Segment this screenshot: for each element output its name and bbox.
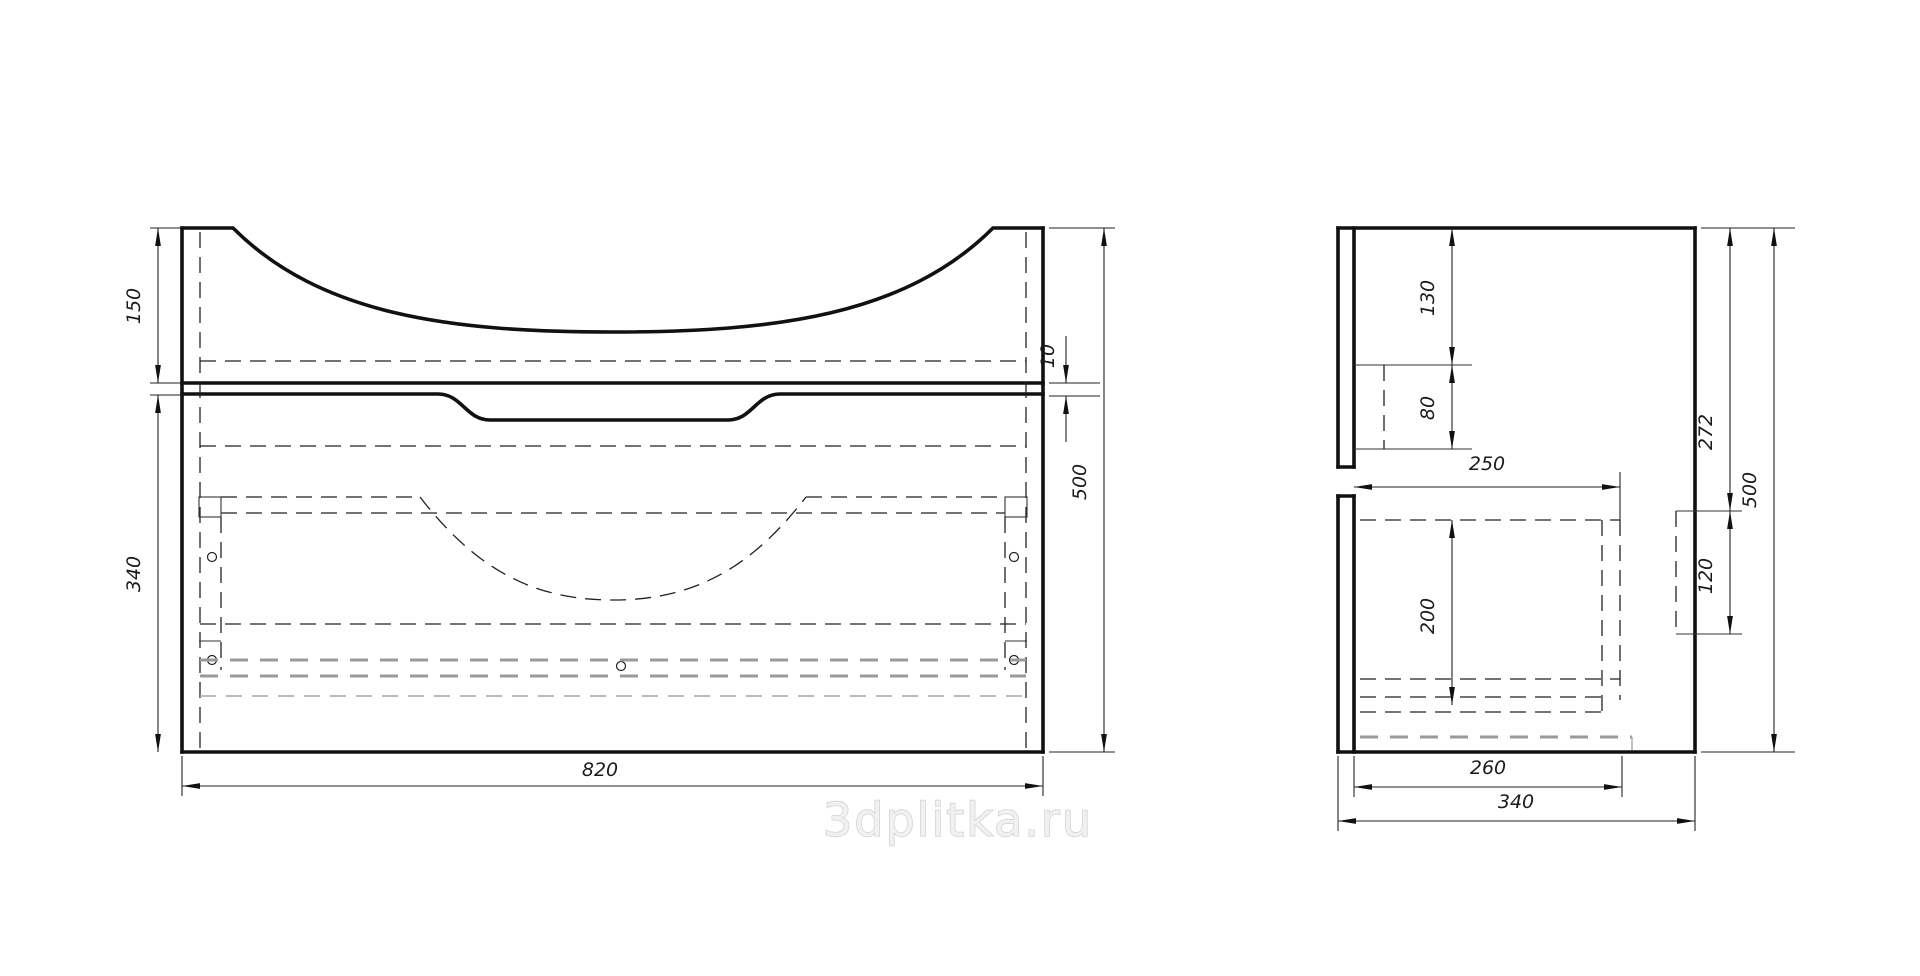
dim-label-820: 820 — [582, 759, 618, 781]
side-view-dimensions: 130 80 250 200 272 120 500 — [1338, 228, 1795, 831]
drawer-front-top-edge-with-handle-recess — [182, 394, 1043, 420]
side-view-features — [1354, 365, 1742, 750]
screw-hole — [1010, 553, 1019, 562]
dim-label-340: 340 — [123, 556, 145, 592]
dim-label-340-side: 340 — [1498, 791, 1534, 813]
front-view-hidden-lines — [199, 232, 1027, 748]
screw-hole-center — [617, 662, 626, 671]
dim-label-10: 10 — [1037, 344, 1059, 368]
dim-label-130: 130 — [1417, 280, 1439, 316]
dim-label-272: 272 — [1695, 414, 1717, 450]
front-view: 150 340 10 500 820 — [123, 228, 1115, 796]
dim-label-500-side: 500 — [1739, 472, 1761, 508]
basin-curve-top-edge — [182, 228, 1043, 332]
side-view-outline — [1338, 228, 1695, 752]
dim-label-250: 250 — [1469, 453, 1505, 475]
dim-label-260: 260 — [1470, 757, 1506, 779]
dim-label-80: 80 — [1417, 396, 1439, 420]
front-view-dimensions: 150 340 10 500 820 — [123, 228, 1115, 796]
drawer-slide-bracket-left — [199, 497, 221, 517]
screw-hole — [208, 553, 217, 562]
drawer-slide-bracket-right — [1005, 497, 1027, 517]
watermark: 3dplitka.ru — [823, 793, 1093, 847]
dim-label-200: 200 — [1417, 598, 1439, 634]
dim-label-500: 500 — [1069, 464, 1091, 500]
technical-drawing: 150 340 10 500 820 — [0, 0, 1920, 976]
side-view: 130 80 250 200 272 120 500 — [1338, 228, 1795, 831]
dim-label-120: 120 — [1695, 558, 1717, 594]
dim-label-150: 150 — [123, 288, 145, 324]
front-view-outline — [182, 228, 1043, 752]
drawing-page: 150 340 10 500 820 — [0, 0, 1920, 976]
